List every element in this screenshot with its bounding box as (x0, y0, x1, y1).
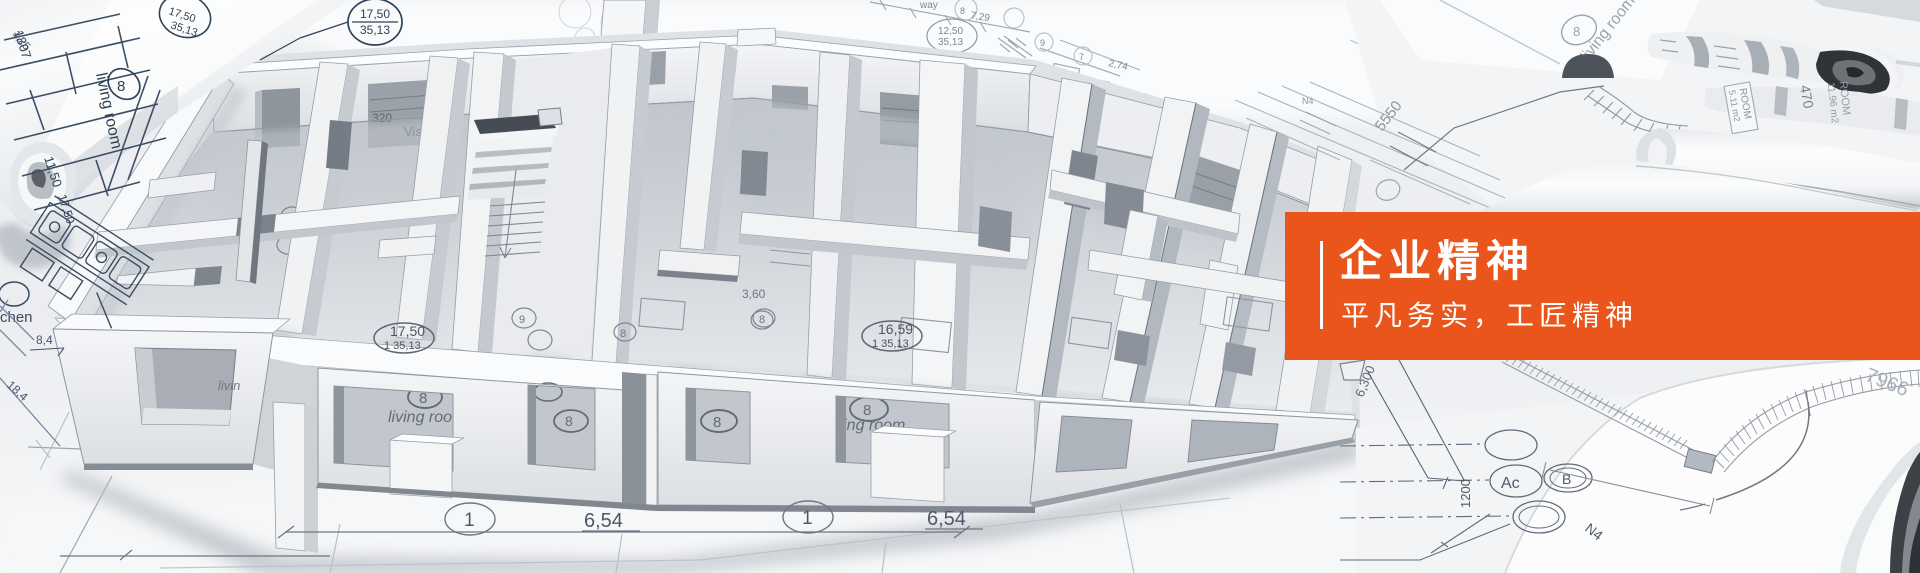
svg-text:8: 8 (713, 414, 721, 431)
svg-text:8,4: 8,4 (36, 333, 53, 347)
svg-text:8: 8 (960, 6, 965, 16)
svg-text:8: 8 (117, 78, 125, 95)
svg-text:17,50: 17,50 (390, 323, 425, 339)
svg-text:1: 1 (802, 508, 813, 529)
svg-text:6,54: 6,54 (584, 510, 623, 532)
svg-text:3,60: 3,60 (742, 287, 766, 301)
svg-text:8: 8 (863, 402, 871, 419)
svg-text:way: way (919, 0, 938, 11)
svg-text:1200: 1200 (1458, 479, 1473, 508)
svg-text:living roo: living roo (388, 409, 452, 426)
svg-text:16,59: 16,59 (878, 321, 913, 337)
svg-text:8: 8 (1573, 24, 1580, 39)
svg-text:9: 9 (1040, 38, 1045, 48)
svg-text:12,50: 12,50 (938, 26, 963, 37)
svg-text:7: 7 (1079, 52, 1084, 62)
svg-text:1 35,13: 1 35,13 (384, 340, 421, 352)
svg-text:N4: N4 (1302, 96, 1314, 106)
svg-text:1: 1 (464, 510, 475, 531)
svg-text:8: 8 (759, 314, 765, 326)
svg-text:8: 8 (565, 413, 573, 429)
svg-text:livin: livin (218, 378, 240, 393)
svg-text:35,13: 35,13 (938, 37, 963, 48)
svg-text:8: 8 (620, 328, 626, 340)
svg-text:Ac: Ac (1501, 475, 1520, 492)
svg-text:320: 320 (372, 111, 392, 125)
svg-text:17,50: 17,50 (360, 7, 390, 21)
svg-text:35,13: 35,13 (360, 23, 390, 37)
svg-text:1 35,13: 1 35,13 (872, 338, 909, 350)
svg-text:6,54: 6,54 (927, 508, 966, 530)
svg-text:9: 9 (519, 314, 525, 326)
